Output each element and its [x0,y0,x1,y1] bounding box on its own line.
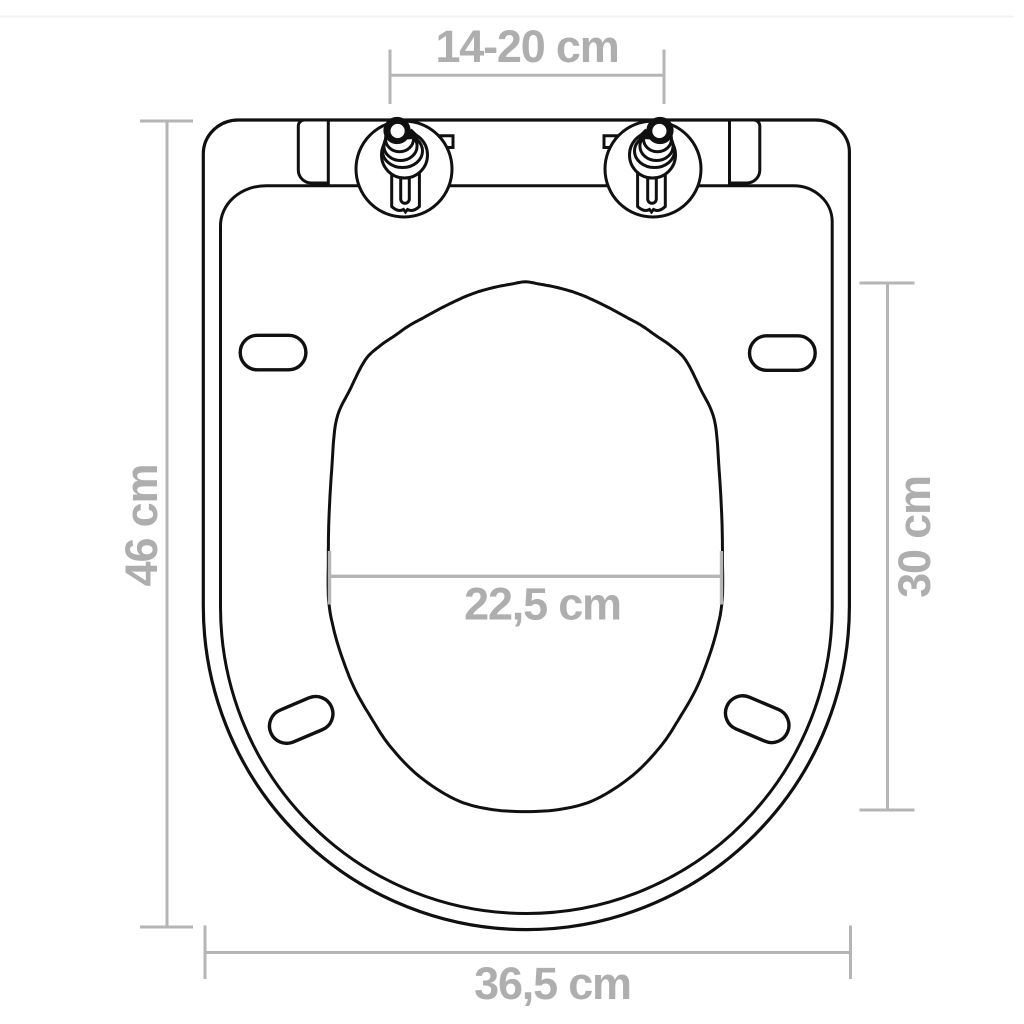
svg-text:36,5 cm: 36,5 cm [474,958,631,1009]
svg-text:46 cm: 46 cm [116,465,167,587]
svg-text:22,5 cm: 22,5 cm [464,579,621,630]
svg-text:14-20 cm: 14-20 cm [435,21,618,72]
svg-text:30 cm: 30 cm [889,476,940,598]
